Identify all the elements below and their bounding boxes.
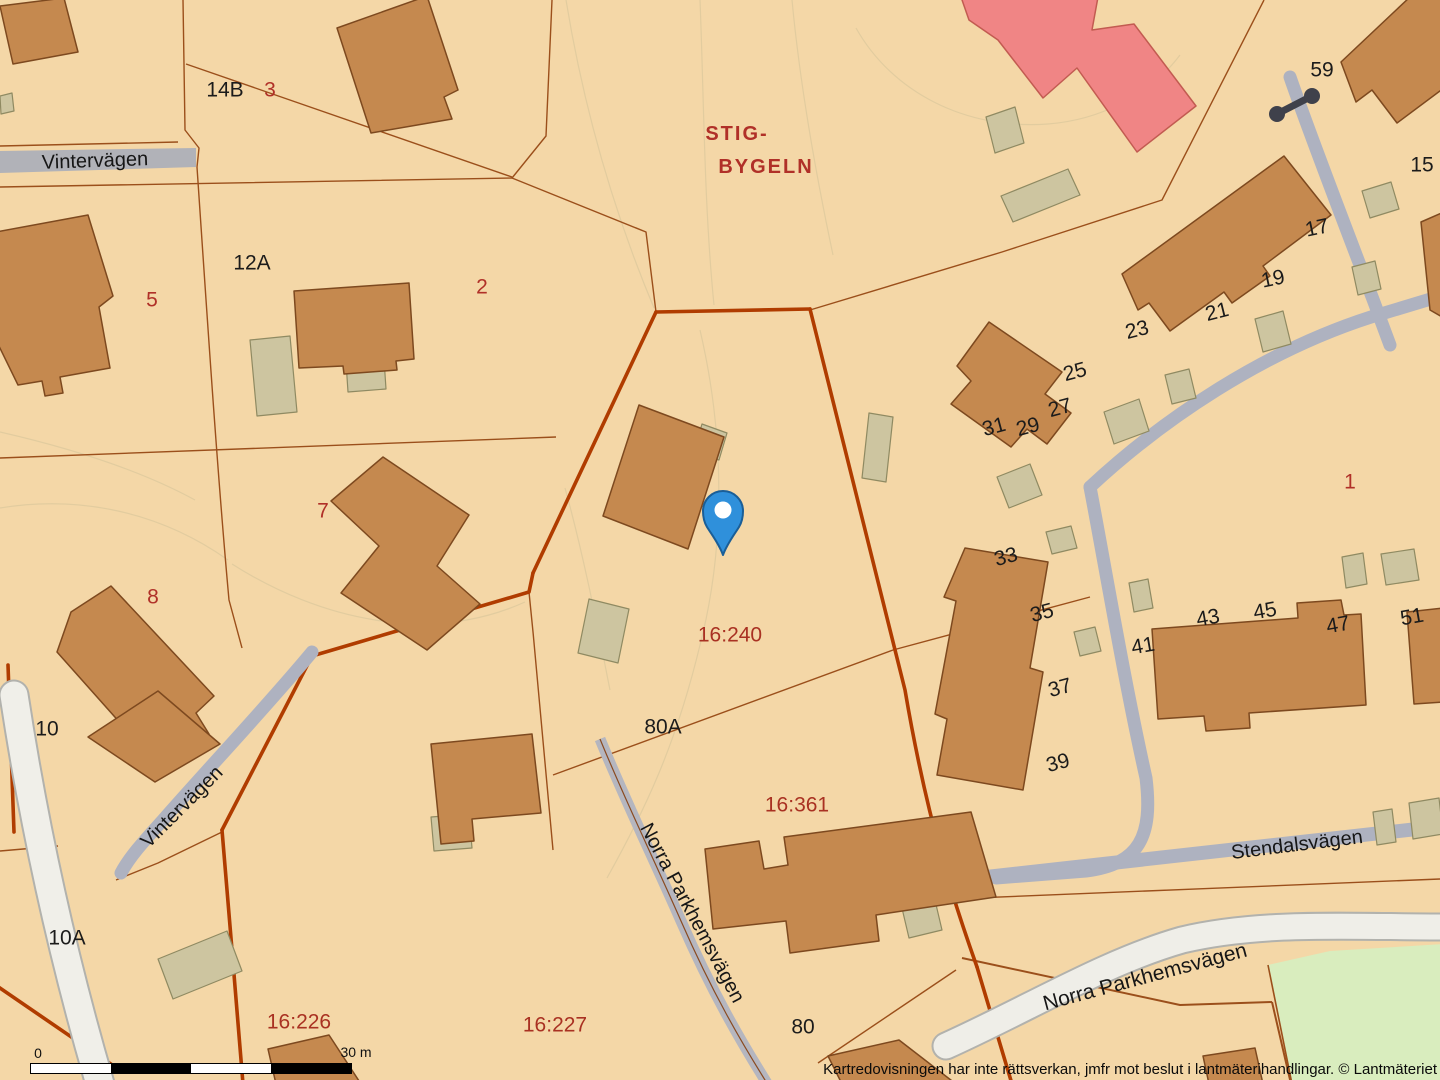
house-number: 23 [1123, 317, 1151, 343]
house-number-red: 3 [264, 80, 276, 101]
house-number-red: 8 [147, 587, 159, 608]
parcel-id-16-361: 16:361 [765, 795, 829, 816]
house-number: 33 [992, 544, 1020, 570]
parcel-id-16-227: 16:227 [523, 1015, 587, 1036]
house-number: 59 [1310, 60, 1333, 81]
parcel-id-16-226: 16:226 [267, 1012, 331, 1033]
house-number: 14B [206, 80, 243, 101]
house-number: 80A [644, 717, 681, 738]
area-name-line1: STIG- [705, 124, 768, 144]
house-number-red: 5 [146, 290, 158, 311]
house-number-red: 1 [1344, 472, 1356, 493]
area-name-line2: BYGELN [718, 157, 813, 177]
house-number: 10A [48, 928, 85, 949]
house-number: 39 [1044, 750, 1072, 776]
house-number: 12A [233, 253, 270, 274]
house-number: 47 [1325, 613, 1352, 638]
house-number: 17 [1303, 215, 1330, 240]
house-number: 51 [1399, 605, 1426, 630]
scale-bar [30, 1063, 352, 1074]
house-number-red: 7 [317, 501, 329, 522]
house-number: 80 [791, 1017, 814, 1038]
street-label-vintervagen-top: Vintervägen [41, 149, 148, 173]
house-number: 27 [1046, 395, 1074, 421]
house-number: 29 [1014, 414, 1042, 440]
house-number-red: 2 [476, 277, 488, 298]
house-number: 25 [1061, 359, 1089, 385]
house-number: 43 [1195, 606, 1222, 631]
scale-bar-max: 30 m [340, 1044, 371, 1060]
house-number: 15 [1410, 155, 1433, 176]
attribution-text: Kartredovisningen har inte rättsverkan, … [823, 1061, 1437, 1078]
parcel-id-16-240: 16:240 [698, 625, 762, 646]
location-pin-icon[interactable] [703, 491, 743, 555]
house-number: 37 [1046, 675, 1074, 701]
house-number: 19 [1259, 266, 1286, 291]
house-number: 35 [1028, 600, 1056, 626]
green-area [1268, 944, 1440, 1080]
map-canvas[interactable]: Vintervägen Vintervägen Norra Parkhemsvä… [0, 0, 1440, 1080]
scale-bar-zero: 0 [34, 1045, 42, 1061]
house-number: 10 [35, 719, 58, 740]
house-number: 41 [1130, 634, 1157, 659]
house-number: 31 [980, 414, 1008, 440]
house-number: 21 [1203, 299, 1231, 325]
house-number: 45 [1252, 599, 1279, 624]
